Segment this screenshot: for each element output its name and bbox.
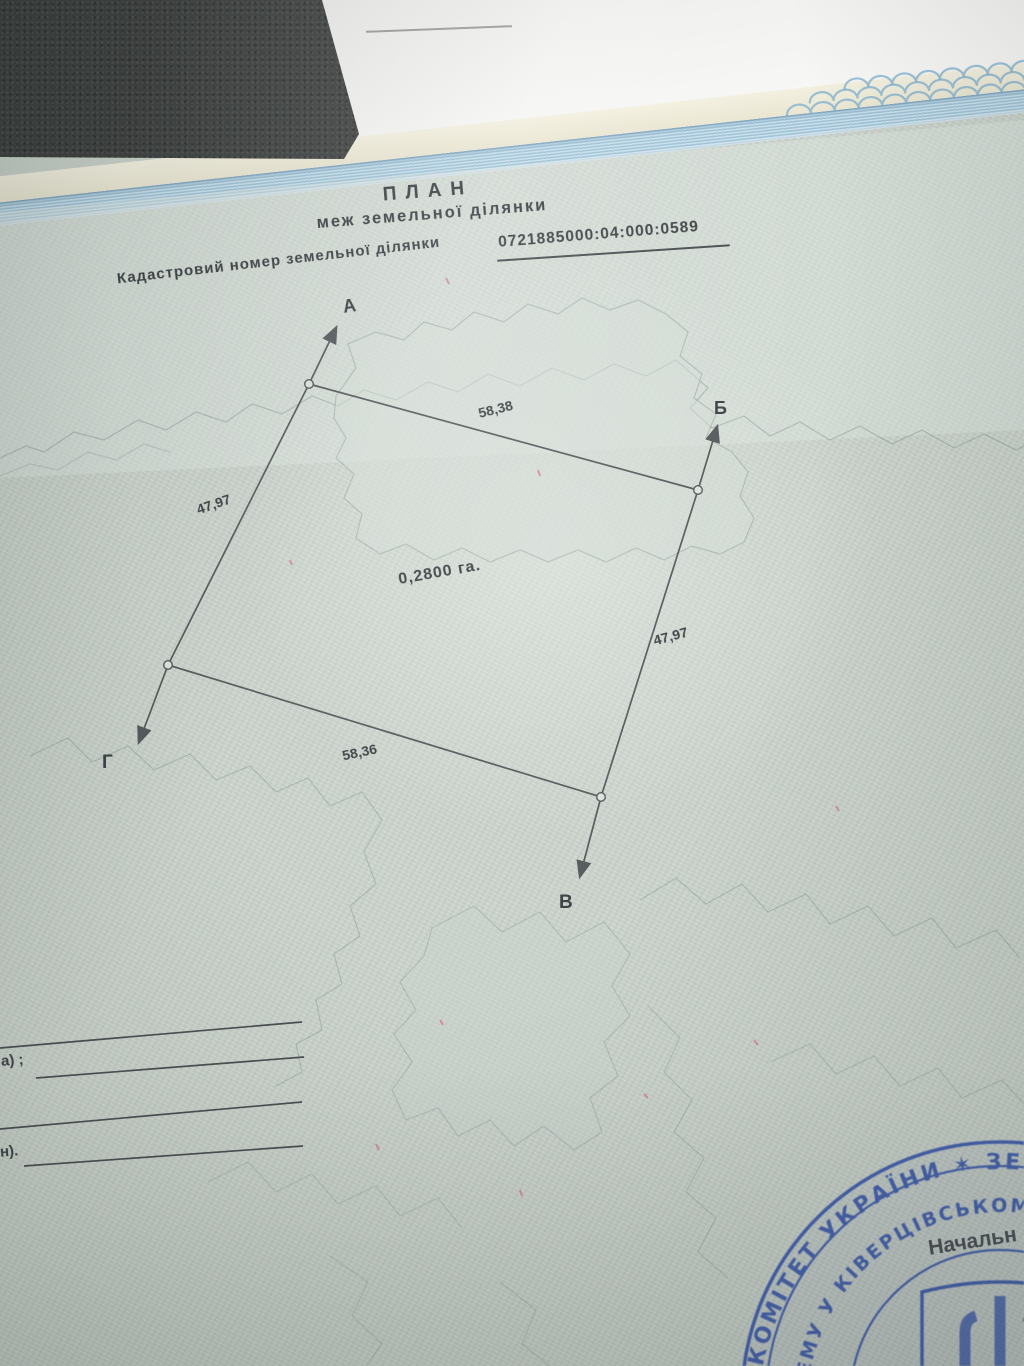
official-round-stamp: ИЙ КОМІТЕТ УКРАЇНИ ✶ ЗЕМЕЛ ОМЗЕМУ У КІВЕ…: [0, 0, 1024, 1366]
photo-of-land-plan-document: ПЛАН меж земельної ділянки Кадастровий н…: [0, 0, 1024, 1366]
